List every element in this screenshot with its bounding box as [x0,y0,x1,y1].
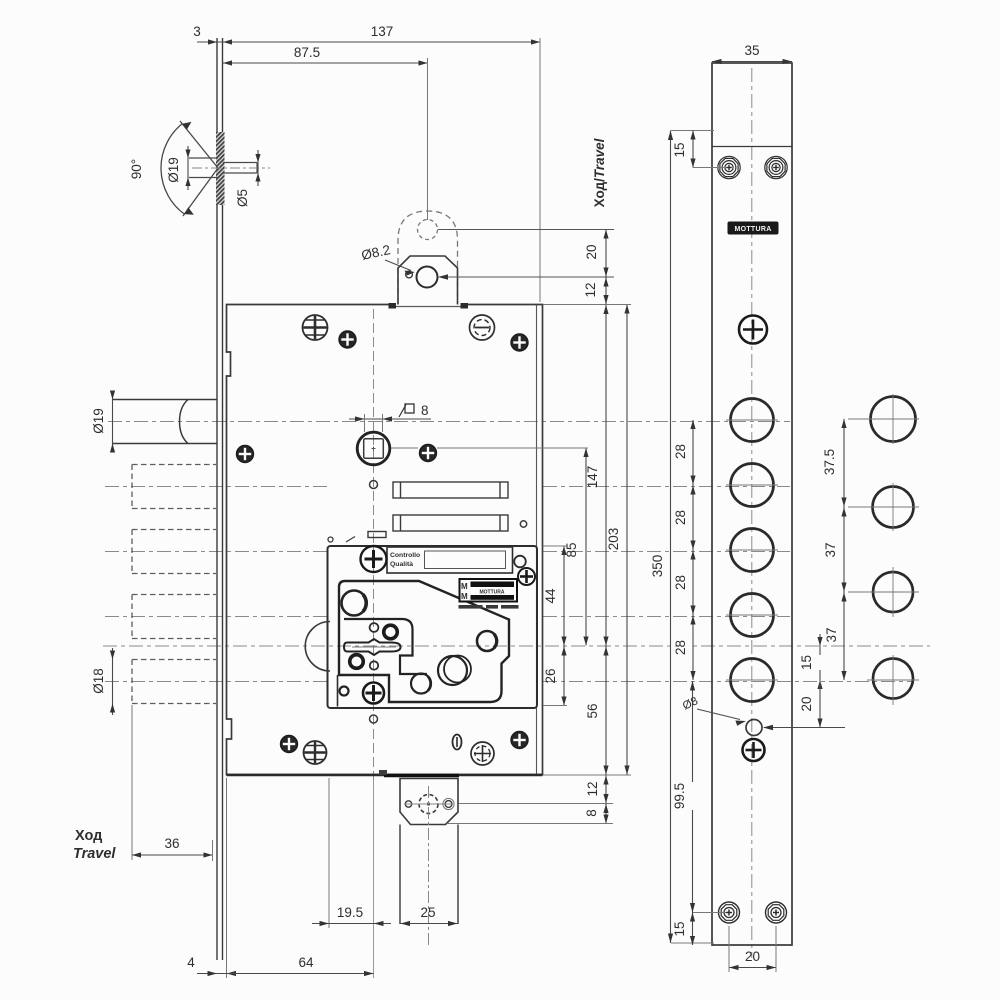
svg-text:20: 20 [799,696,814,711]
svg-text:15: 15 [672,142,687,157]
svg-text:8: 8 [584,809,599,817]
svg-text:20: 20 [584,244,599,259]
svg-text:56: 56 [585,703,600,718]
svg-text:90°: 90° [129,159,144,179]
svg-text:12: 12 [583,282,598,297]
svg-text:350: 350 [650,555,665,578]
svg-text:85: 85 [564,542,579,557]
svg-text:MOTTURA: MOTTURA [734,226,771,233]
svg-text:35: 35 [744,43,759,58]
svg-text:Ход: Ход [75,828,102,844]
svg-text:37: 37 [824,627,839,642]
svg-text:Qualità: Qualità [390,561,413,568]
svg-text:Ø19: Ø19 [91,408,106,434]
svg-text:26: 26 [543,668,558,683]
svg-text:25: 25 [420,905,435,920]
svg-text:19.5: 19.5 [337,905,363,920]
svg-text:64: 64 [298,955,314,970]
svg-text:8: 8 [421,403,429,418]
svg-text:M: M [461,582,468,591]
svg-text:36: 36 [164,836,179,851]
svg-text:203: 203 [606,528,621,551]
svg-text:3: 3 [193,24,201,39]
svg-text:15: 15 [799,655,814,670]
svg-text:28: 28 [673,510,688,525]
svg-text:Ø5: Ø5 [235,189,250,207]
svg-text:MOTTURA: MOTTURA [480,590,505,596]
svg-text:Travel: Travel [73,846,116,862]
svg-text:Ход/Travel: Ход/Travel [592,138,607,207]
svg-text:Ø18: Ø18 [91,668,106,694]
svg-text:M: M [461,592,468,601]
svg-text:87.5: 87.5 [294,45,320,60]
svg-text:12: 12 [585,781,600,796]
svg-text:28: 28 [673,575,688,590]
svg-text:137: 137 [371,24,394,39]
svg-text:Ø19: Ø19 [166,157,181,183]
svg-text:37: 37 [823,542,838,557]
svg-text:Controllo: Controllo [390,552,420,559]
svg-text:20: 20 [745,949,760,964]
svg-text:99.5: 99.5 [672,783,687,809]
svg-text:15: 15 [672,921,687,936]
svg-text:44: 44 [543,588,558,604]
svg-text:37.5: 37.5 [822,449,837,475]
svg-text:147: 147 [585,466,600,489]
svg-text:4: 4 [187,955,195,970]
svg-text:28: 28 [673,444,688,459]
svg-text:28: 28 [673,640,688,655]
